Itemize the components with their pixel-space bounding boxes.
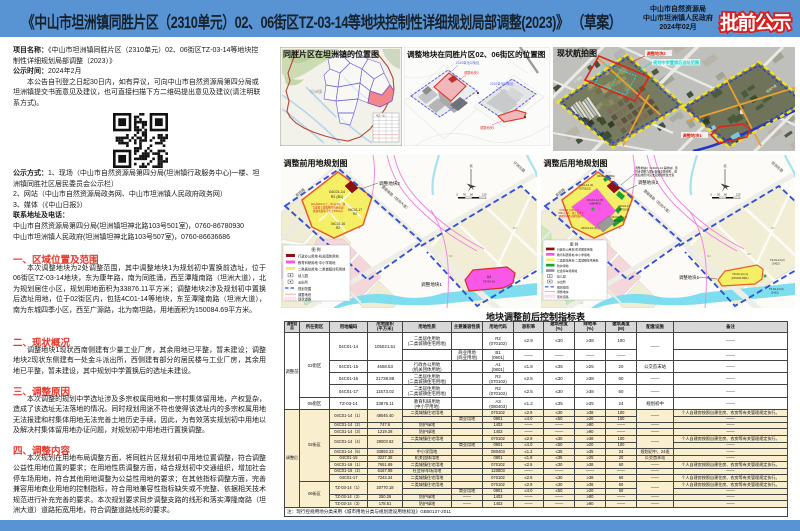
svg-text:环洲北路: 环洲北路	[512, 160, 526, 173]
svg-text:TZ-03-14 (2): TZ-03-14 (2)	[770, 258, 785, 262]
svg-text:(080403): (080403)	[589, 202, 600, 206]
svg-text:坦洲镇: 坦洲镇	[310, 88, 322, 94]
svg-text:幼儿园: 幼儿园	[557, 274, 566, 279]
svg-text:120: 120	[482, 193, 487, 197]
svg-text:R2: R2	[513, 226, 517, 230]
svg-text:现状道路: 现状道路	[298, 296, 312, 301]
svg-text:现状道路: 现状道路	[557, 294, 569, 299]
svg-text:TZ-03-14: TZ-03-14	[483, 280, 496, 284]
svg-text:调整地块: 调整地块	[557, 289, 569, 294]
svg-text:图 例: 图 例	[311, 246, 320, 252]
svg-text:04C01-14 (4): 04C01-14 (4)	[581, 226, 596, 230]
svg-text:调整地块: 调整地块	[298, 292, 312, 297]
svg-text:教育科研用地·中小学用地: 教育科研用地·中小学用地	[557, 252, 590, 257]
svg-text:30: 30	[463, 193, 466, 197]
svg-text:R2: R2	[449, 254, 453, 258]
svg-text:04C01-15 (0801): 04C01-15 (0801)	[597, 175, 615, 178]
svg-text:60: 60	[470, 193, 473, 197]
svg-text:0: 0	[711, 193, 713, 197]
svg-text:120: 120	[736, 193, 741, 197]
svg-text:派出所: 派出所	[557, 279, 566, 284]
svg-text:(070102 0901): (070102 0901)	[732, 276, 749, 280]
svg-text:调整地块1: 调整地块1	[421, 281, 442, 288]
svg-text:规划中学置换后选址范围: 规划中学置换后选址范围	[653, 59, 699, 66]
svg-text:30: 30	[717, 193, 720, 197]
svg-text:二类居住用地·二类城镇住宅用地: 二类居住用地·二类城镇住宅用地	[557, 257, 599, 262]
svg-text:规划范围: 规划范围	[298, 286, 312, 291]
svg-text:R2: R2	[707, 254, 711, 258]
svg-text:R2: R2	[336, 226, 340, 230]
svg-text:60: 60	[724, 193, 727, 197]
svg-text:R2 (B1): R2 (B1)	[331, 195, 343, 199]
svg-text:TZ-03-14 (1): TZ-03-14 (1)	[732, 272, 748, 276]
svg-text:(070102): (070102)	[614, 218, 625, 222]
svg-text:图 例: 图 例	[570, 241, 579, 246]
svg-text:坦洲东路: 坦洲东路	[770, 160, 784, 173]
svg-text:R2: R2	[771, 226, 775, 230]
svg-text:北: 北	[724, 163, 728, 168]
svg-text:行政办公用地·机关团体用地: 行政办公用地·机关团体用地	[298, 253, 339, 258]
svg-text:调整地块1: 调整地块1	[679, 274, 700, 281]
svg-text:教育科研用地·中小学用地: 教育科研用地·中小学用地	[298, 260, 336, 265]
svg-text:(1402): (1402)	[772, 261, 780, 265]
svg-text:施建筑面积不大于5000㎡): 施建筑面积不大于5000㎡)	[313, 209, 343, 213]
svg-text:(R2占96%以上，B1占4%，独: (R2占96%以上，B1占4%，独	[311, 202, 346, 206]
svg-text:2310单元02街区: 2310单元02街区	[456, 60, 480, 65]
svg-text:整后线形详见法定图则修改方案: 整后线形详见法定图则修改方案	[635, 173, 674, 177]
svg-text:调整地块1: 调整地块1	[683, 132, 703, 139]
svg-text:(1402): (1402)	[771, 290, 779, 294]
svg-text:调整地块2: 调整地块2	[638, 179, 659, 186]
svg-text:R2: R2	[747, 252, 751, 256]
svg-text:幼儿园: 幼儿园	[298, 273, 309, 278]
svg-text:调整地块2: 调整地块2	[647, 50, 667, 57]
svg-text:R2: R2	[353, 212, 357, 216]
svg-text:(070102): (070102)	[619, 207, 630, 211]
svg-text:04C01-14: 04C01-14	[329, 190, 345, 194]
svg-text:04C01-16 (1): 04C01-16 (1)	[611, 215, 626, 219]
svg-text:立设置于建筑物内的商业设: 立设置于建筑物内的商业设	[312, 206, 344, 210]
svg-text:2310单元06街区: 2310单元06街区	[490, 81, 514, 86]
svg-text:行政办公用地·机关团体用地: 行政办公用地·机关团体用地	[557, 247, 593, 252]
svg-text:(070102): (070102)	[579, 187, 590, 191]
svg-text:0: 0	[457, 193, 459, 197]
svg-text:派出所: 派出所	[298, 280, 309, 285]
svg-text:防护绿地: 防护绿地	[557, 263, 569, 268]
svg-text:建筑物内商业建筑面积): 建筑物内商业建筑面积)	[559, 214, 584, 218]
svg-text:调整地块2: 调整地块2	[464, 70, 479, 75]
svg-text:TZ-03-14 (3): TZ-03-14 (3)	[769, 287, 784, 291]
svg-text:04C01-17: 04C01-17	[618, 204, 630, 208]
svg-text:规划范围: 规划范围	[557, 284, 569, 289]
svg-text:社会停车场用地: 社会停车场用地	[557, 268, 577, 273]
svg-text:调整地块1: 调整地块1	[480, 125, 495, 130]
svg-text:二类居住用地·二类城镇住宅用地: 二类居住用地·二类城镇住宅用地	[298, 266, 346, 271]
svg-text:北: 北	[470, 163, 474, 168]
svg-text:A3: A3	[487, 275, 491, 279]
